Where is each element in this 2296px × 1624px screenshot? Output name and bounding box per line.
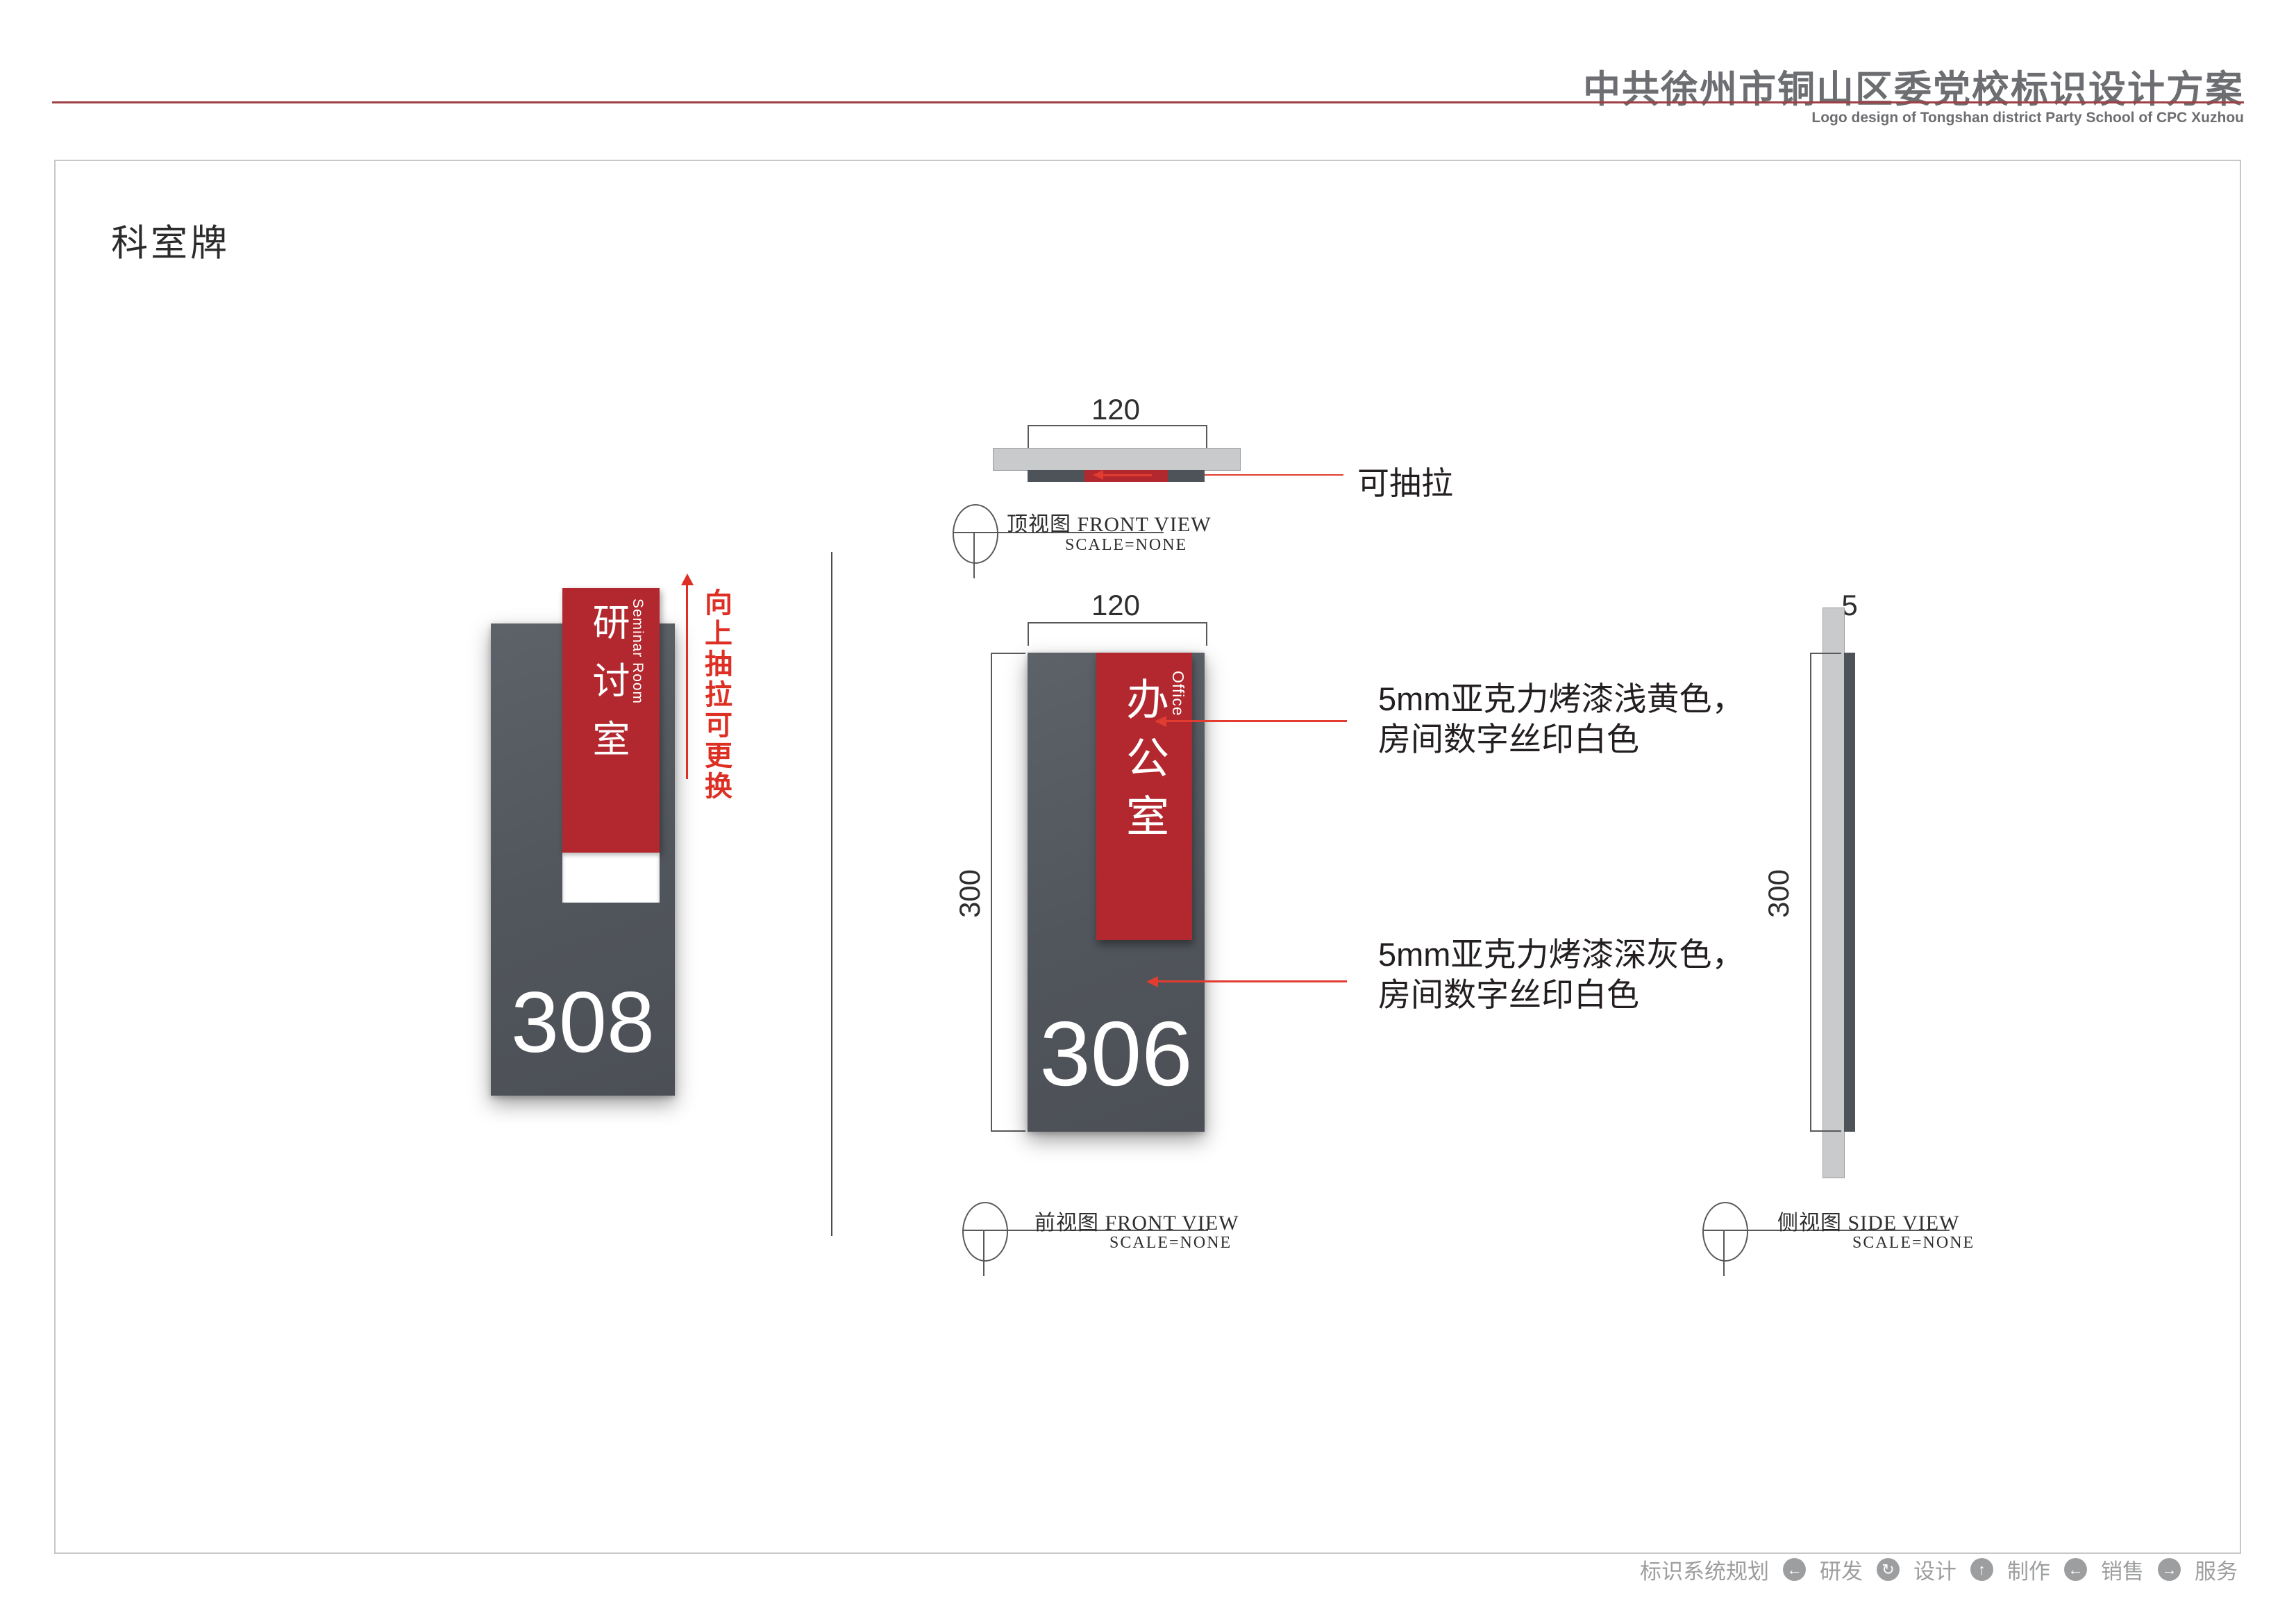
rotate-arrow-icon: ↻ [1877, 1558, 1900, 1581]
insert-note: 5mm亚克力烤漆浅黄色， 房间数字丝印白色 [1378, 679, 1744, 760]
slide-arrow-icon [1093, 470, 1103, 480]
page-subtitle: Logo design of Tongshan district Party S… [1811, 110, 2244, 126]
panel-note: 5mm亚克力烤漆深灰色， 房间数字丝印白色 [1378, 935, 1744, 1015]
dim-tick-top [991, 653, 1025, 654]
design-sheet: 中共徐州市铜山区委党校标识设计方案 Logo design of Tongsha… [0, 0, 2296, 1624]
insert-arrow-icon [1155, 716, 1166, 727]
callout-pullable: 可抽拉 [1357, 458, 1453, 504]
footer-item: 标识系统规划 [1640, 1554, 1769, 1585]
view-scale: SCALE=NONE [1065, 536, 1187, 555]
dim-tick-bottom [991, 1130, 1025, 1132]
section-title: 科室牌 [111, 214, 230, 267]
insert-note-line2: 房间数字丝印白色 [1378, 719, 1744, 760]
view-marker-icon [953, 504, 998, 564]
view-label: 侧视图 SIDE VIEW [1777, 1205, 1959, 1236]
view-label: 前视图 FRONT VIEW [1034, 1205, 1239, 1236]
pull-note: 向上抽拉可更换 [696, 588, 736, 802]
up-arrow-icon [681, 574, 694, 585]
arrow-up-icon: ↑ [1970, 1558, 1993, 1581]
footer-item: 设计 [1913, 1554, 1956, 1585]
room-number: 308 [491, 973, 675, 1072]
footer-item: 销售 [2101, 1554, 2144, 1585]
slide-arrow-line [1103, 474, 1152, 476]
room-name-en: Office [1168, 671, 1187, 717]
footer-process-strip: 标识系统规划 ← 研发 ↻ 设计 ↑ 制作 ← 销售 → 服务 [1640, 1554, 2238, 1585]
marker-line-v [1723, 1230, 1725, 1276]
room-name-en: Seminar Room [629, 598, 646, 704]
view-scale: SCALE=NONE [1109, 1234, 1232, 1253]
marker-line-v [983, 1230, 984, 1276]
page-title: 中共徐州市铜山区委党校标识设计方案 [1583, 58, 2244, 113]
dim-bracket-width [1028, 622, 1207, 646]
view-label-en: FRONT VIEW [1105, 1212, 1239, 1234]
panel-leader [1157, 980, 1347, 982]
dim-width: 120 [1081, 589, 1150, 622]
dim-bracket-width [1028, 425, 1207, 449]
dim-height: 300 [953, 859, 987, 928]
header-rule [52, 101, 2244, 103]
arrow-right-icon: → [2158, 1558, 2181, 1581]
up-arrow-line [686, 585, 688, 779]
view-marker-icon [1702, 1202, 1748, 1262]
wall-plate-bar [993, 448, 1241, 471]
view-label-en: SIDE VIEW [1848, 1212, 1960, 1234]
panel-bar [1844, 653, 1855, 1132]
vertical-divider [831, 552, 832, 1236]
arrow-left-icon: ← [1783, 1558, 1806, 1581]
panel-note-line1: 5mm亚克力烤漆深灰色， [1378, 935, 1744, 975]
dim-height: 300 [1762, 859, 1795, 928]
dim-tick-bottom [1810, 1130, 1841, 1132]
dim-line-height [1810, 653, 1811, 1132]
insert-note-line1: 5mm亚克力烤漆浅黄色， [1378, 679, 1744, 719]
dim-tick-top [1810, 653, 1841, 654]
view-label-cn: 侧视图 [1777, 1212, 1842, 1234]
view-marker-icon [962, 1202, 1008, 1262]
view-label-cn: 顶视图 [1007, 513, 1071, 536]
blank-slot [562, 853, 660, 903]
dim-line-height [991, 653, 992, 1132]
marker-line-v [973, 533, 975, 578]
insert-leader [1166, 720, 1347, 722]
view-label-en: FRONT VIEW [1078, 513, 1212, 536]
panel-arrow-icon [1146, 976, 1158, 987]
view-scale: SCALE=NONE [1852, 1234, 1975, 1253]
view-label-cn: 前视图 [1034, 1212, 1099, 1234]
room-number: 306 [1028, 1001, 1205, 1106]
arrow-left-icon: ← [2064, 1558, 2087, 1581]
footer-item: 服务 [2195, 1554, 2238, 1585]
view-label: 顶视图 FRONT VIEW [1007, 507, 1212, 537]
room-name-cn: 办公室 [1112, 677, 1174, 852]
callout-leader [1205, 474, 1343, 476]
footer-item: 制作 [2007, 1554, 2050, 1585]
wall-plate-bar [1822, 608, 1845, 1178]
panel-note-line2: 房间数字丝印白色 [1378, 975, 1744, 1015]
room-name-cn: 研讨室 [580, 603, 635, 778]
dim-width: 120 [1081, 393, 1150, 426]
footer-item: 研发 [1820, 1554, 1863, 1585]
